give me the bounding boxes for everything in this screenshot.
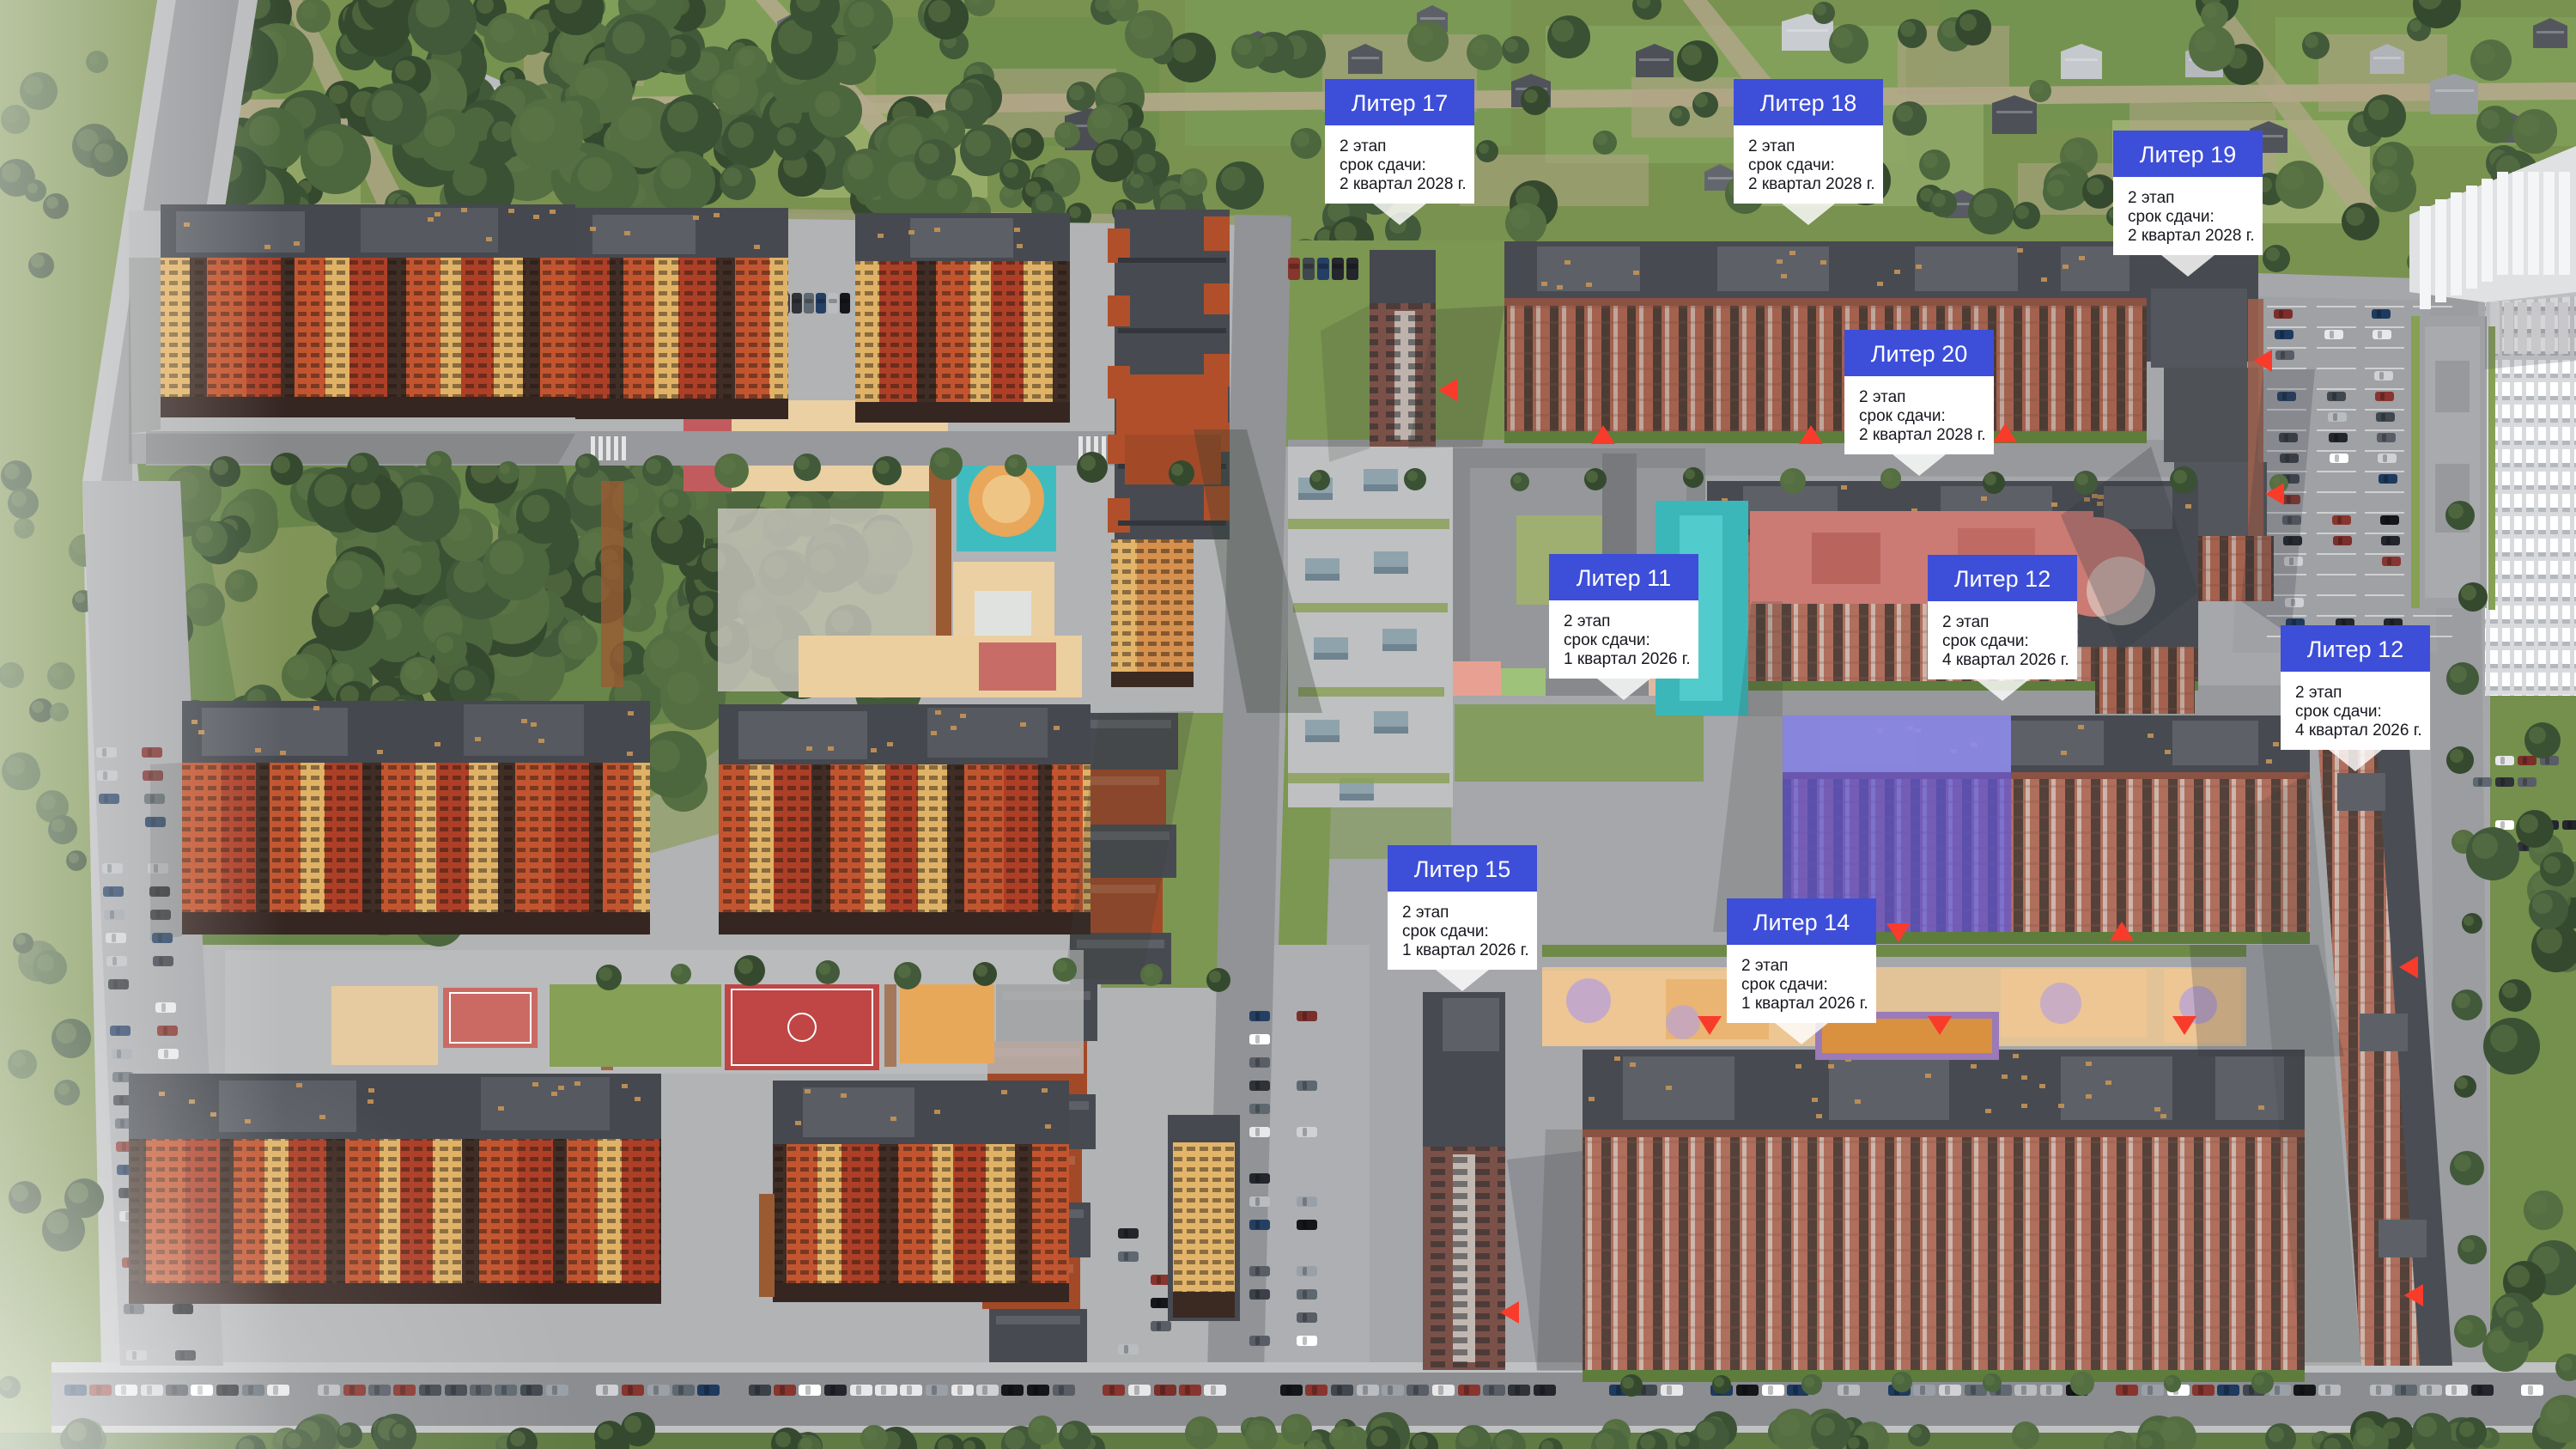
svg-text:Литер 19: Литер 19 — [2140, 142, 2236, 167]
svg-text:Литер 18: Литер 18 — [1760, 90, 1856, 116]
svg-text:2 этап: 2 этап — [1859, 388, 1905, 406]
svg-text:срок сдачи:: срок сдачи: — [1942, 632, 2029, 650]
svg-text:2 квартал 2028 г.: 2 квартал 2028 г. — [1859, 426, 1986, 444]
svg-text:Литер 20: Литер 20 — [1871, 341, 1967, 367]
svg-text:2 квартал 2028 г.: 2 квартал 2028 г. — [2128, 227, 2255, 245]
svg-text:срок сдачи:: срок сдачи: — [1564, 631, 1650, 649]
svg-text:1 квартал 2026 г.: 1 квартал 2026 г. — [1564, 650, 1691, 668]
svg-text:1 квартал 2026 г.: 1 квартал 2026 г. — [1741, 995, 1868, 1013]
svg-text:Литер 12: Литер 12 — [1954, 566, 2050, 592]
svg-text:2 этап: 2 этап — [1748, 137, 1795, 155]
svg-text:4 квартал 2026 г.: 4 квартал 2026 г. — [1942, 651, 2069, 669]
svg-text:срок сдачи:: срок сдачи: — [1340, 156, 1426, 174]
svg-text:срок сдачи:: срок сдачи: — [2295, 703, 2382, 721]
svg-text:2 этап: 2 этап — [1942, 613, 1989, 631]
svg-text:Литер 17: Литер 17 — [1352, 90, 1448, 116]
svg-text:2 этап: 2 этап — [1340, 137, 1386, 155]
svg-text:2 квартал 2028 г.: 2 квартал 2028 г. — [1748, 175, 1875, 193]
svg-text:2 квартал 2028 г.: 2 квартал 2028 г. — [1340, 175, 1467, 193]
svg-text:Литер 12: Литер 12 — [2307, 636, 2403, 662]
svg-text:срок сдачи:: срок сдачи: — [1748, 156, 1835, 174]
svg-text:Литер 15: Литер 15 — [1414, 856, 1510, 882]
svg-text:срок сдачи:: срок сдачи: — [1859, 407, 1946, 425]
svg-text:срок сдачи:: срок сдачи: — [2128, 208, 2215, 226]
svg-text:4 квартал 2026 г.: 4 квартал 2026 г. — [2295, 721, 2422, 740]
svg-text:2 этап: 2 этап — [2128, 189, 2174, 207]
svg-text:1 квартал 2026 г.: 1 квартал 2026 г. — [1402, 941, 1529, 959]
svg-text:Литер 11: Литер 11 — [1577, 565, 1671, 591]
svg-text:2 этап: 2 этап — [2295, 684, 2342, 702]
svg-text:2 этап: 2 этап — [1564, 612, 1610, 630]
svg-text:2 этап: 2 этап — [1741, 957, 1788, 975]
svg-text:2 этап: 2 этап — [1402, 904, 1449, 922]
svg-text:срок сдачи:: срок сдачи: — [1402, 922, 1489, 941]
svg-text:Литер 14: Литер 14 — [1753, 910, 1850, 935]
svg-text:срок сдачи:: срок сдачи: — [1741, 976, 1828, 994]
